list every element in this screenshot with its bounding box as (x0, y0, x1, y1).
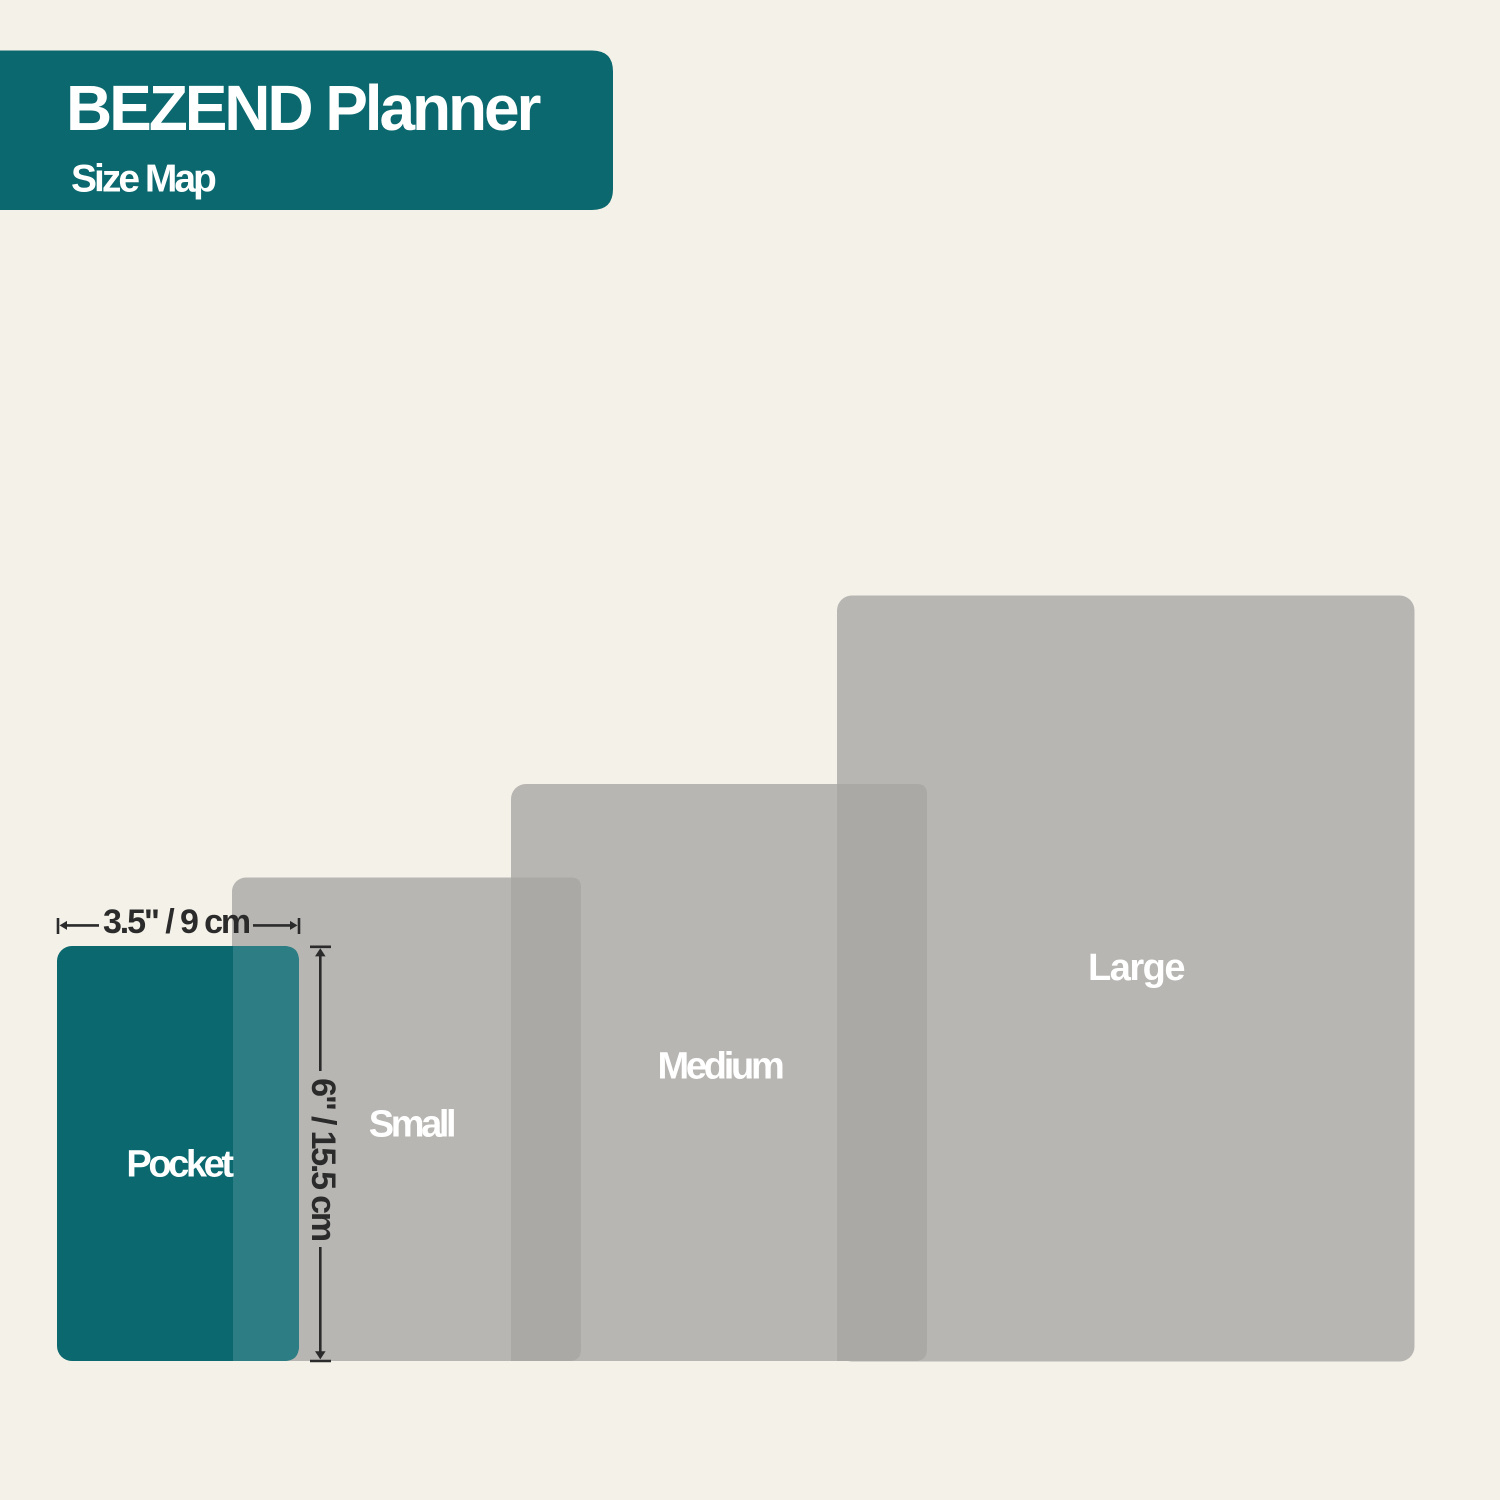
svg-text:6" / 15.5 cm: 6" / 15.5 cm (304, 1078, 342, 1241)
svg-text:BEZEND Planner: BEZEND Planner (66, 72, 540, 144)
svg-text:Pocket: Pocket (126, 1144, 234, 1186)
svg-text:Size Map: Size Map (71, 158, 216, 201)
svg-text:3.5" / 9 cm: 3.5" / 9 cm (103, 903, 250, 941)
svg-text:Large: Large (1088, 947, 1184, 989)
svg-text:Small: Small (369, 1104, 454, 1146)
svg-text:Medium: Medium (657, 1046, 783, 1088)
